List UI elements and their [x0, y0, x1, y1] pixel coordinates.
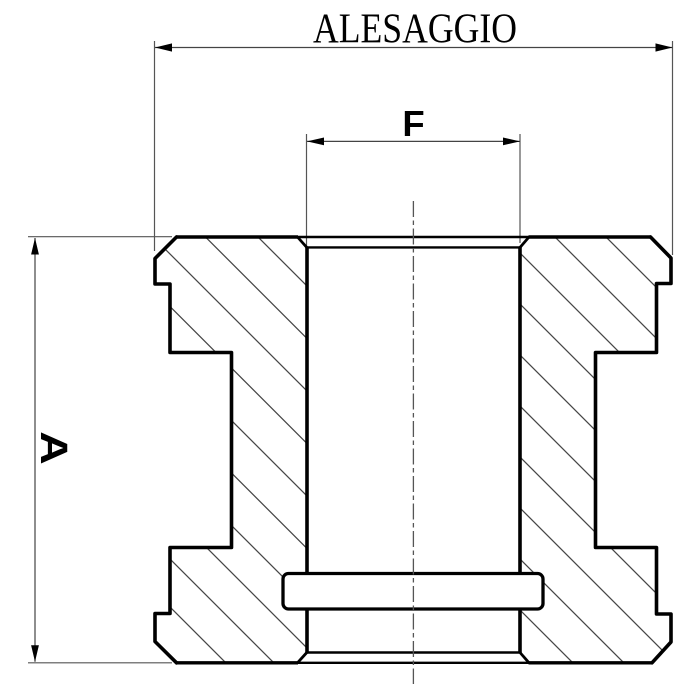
svg-text:ALESAGGIO: ALESAGGIO: [313, 6, 517, 53]
svg-text:A: A: [33, 431, 75, 464]
svg-text:F: F: [402, 103, 424, 144]
